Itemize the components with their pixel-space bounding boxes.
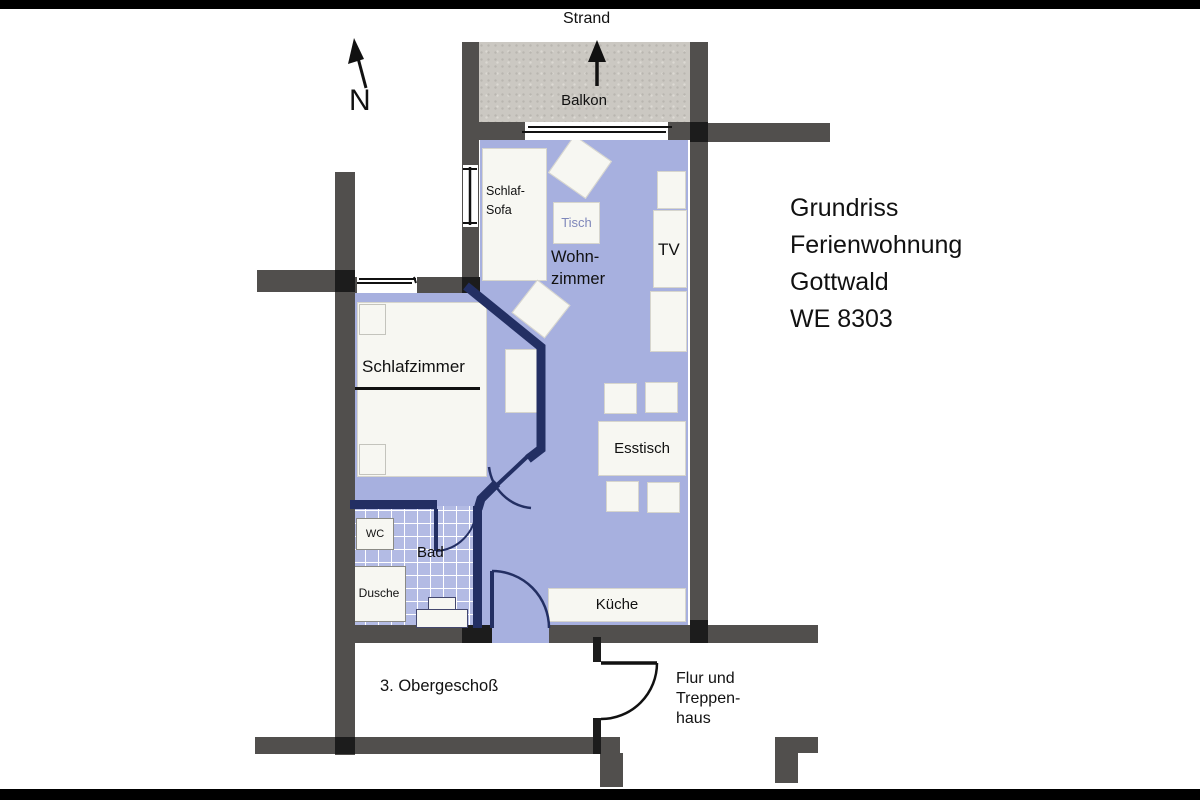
dining-chair-1 [604, 383, 637, 414]
entrance-floor [490, 625, 549, 643]
letterbox-bottom [0, 789, 1200, 800]
north-arrow-icon [348, 38, 366, 88]
coffee-table-label: Tisch [553, 202, 600, 244]
wall-stub-south-right [775, 753, 798, 783]
bedroom-label: Schlafzimmer [362, 357, 465, 377]
stairwell-label: Flur undTreppen-haus [676, 669, 740, 729]
living-room-label: Wohn-zimmer [551, 246, 605, 291]
dining-chair-2 [645, 382, 678, 413]
balcony-sliding-door [525, 122, 668, 140]
window-living-west [463, 165, 478, 227]
door-post-lower [593, 718, 601, 754]
tv-unit-top [657, 171, 686, 209]
dining-chair-4 [647, 482, 680, 513]
bed-edge-line [355, 387, 480, 390]
sleep-sofa-label: Schlaf-Sofa [486, 182, 525, 221]
bath-label: Bad [417, 544, 444, 561]
shower-label: Dusche [352, 566, 406, 622]
compass-n-label: N [349, 84, 371, 119]
door-post-upper [593, 637, 601, 662]
wall-joint-northeast [690, 122, 708, 142]
letterbox-top [0, 0, 1200, 9]
wall-balcony-right [668, 122, 690, 140]
wall-building-south-right [775, 737, 818, 753]
wall-joint-living-west [462, 277, 480, 293]
balcony-label: Balkon [478, 92, 690, 109]
wall-stub-east [708, 123, 830, 142]
wall-building-west [335, 172, 355, 755]
wall-joint-southwest [335, 737, 355, 754]
floor-level-label: 3. Obergeschoß [380, 677, 498, 696]
balcony-deck [478, 42, 690, 122]
bed-pillow-1 [359, 304, 386, 335]
tv-label: TV [658, 240, 680, 260]
dining-chair-3 [606, 481, 639, 512]
stairwell-door [601, 663, 657, 719]
wall-stub-west [257, 270, 335, 292]
wc-label: WC [356, 518, 394, 550]
washbasin-base [416, 609, 468, 628]
tv-unit-bottom [650, 291, 687, 352]
wall-apartment-south-b [549, 625, 818, 643]
window-bedroom-north [357, 277, 417, 293]
wall-balcony-left [478, 122, 525, 140]
wall-stub-south-left [600, 753, 623, 787]
kitchen-label: Küche [548, 588, 686, 622]
wall-bath-north [350, 500, 437, 509]
wardrobe [505, 349, 538, 413]
wall-bath-east [473, 506, 482, 628]
floor-plan-canvas: Strand Balkon N Schlaf-Sofa Tisch Wohn-z… [0, 0, 1200, 800]
dining-table-label: Esstisch [598, 421, 686, 476]
bed-pillow-2 [359, 444, 386, 475]
plan-title: GrundrissFerienwohnungGottwaldWE 8303 [790, 190, 962, 338]
wall-joint-southeast [690, 620, 708, 643]
wall-building-south [255, 737, 620, 754]
wall-joint-west-stub [335, 270, 355, 292]
strand-label: Strand [563, 10, 610, 28]
